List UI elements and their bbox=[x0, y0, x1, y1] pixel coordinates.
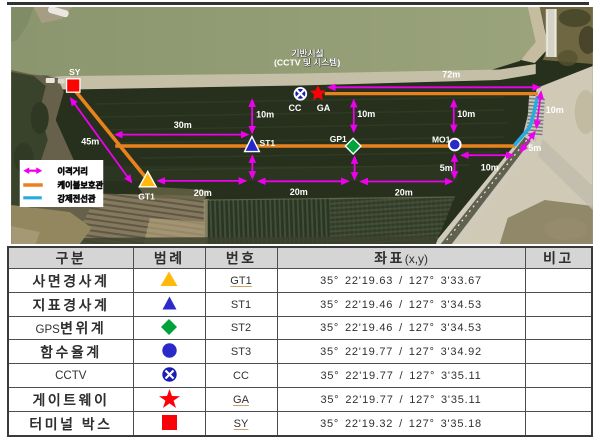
svg-text:10m: 10m bbox=[481, 162, 499, 172]
svg-text:강제전선관: 강제전선관 bbox=[57, 194, 96, 204]
svg-text:10m: 10m bbox=[457, 109, 475, 119]
svg-text:20m: 20m bbox=[395, 187, 413, 197]
svg-text:10m: 10m bbox=[546, 105, 564, 115]
svg-text:GT1: GT1 bbox=[138, 191, 155, 201]
svg-text:5m: 5m bbox=[440, 163, 453, 173]
svg-text:ST1: ST1 bbox=[260, 138, 276, 148]
svg-text:20m: 20m bbox=[194, 188, 212, 198]
svg-text:(CCTV 및 시스템): (CCTV 및 시스템) bbox=[274, 56, 340, 67]
svg-text:MO1: MO1 bbox=[432, 135, 451, 145]
svg-text:이격거리: 이격거리 bbox=[57, 166, 88, 176]
svg-text:20m: 20m bbox=[290, 187, 308, 197]
svg-text:10m: 10m bbox=[256, 110, 274, 120]
svg-text:30m: 30m bbox=[174, 120, 192, 130]
svg-text:CC: CC bbox=[288, 103, 301, 113]
svg-text:케이블보호관: 케이블보호관 bbox=[57, 180, 103, 190]
svg-text:SY: SY bbox=[69, 67, 81, 77]
svg-text:72m: 72m bbox=[442, 70, 460, 80]
svg-text:GP1: GP1 bbox=[330, 134, 347, 144]
svg-text:5m: 5m bbox=[528, 143, 541, 153]
svg-text:10m: 10m bbox=[357, 109, 375, 119]
svg-text:GA: GA bbox=[317, 103, 331, 113]
svg-text:45m: 45m bbox=[81, 136, 99, 146]
